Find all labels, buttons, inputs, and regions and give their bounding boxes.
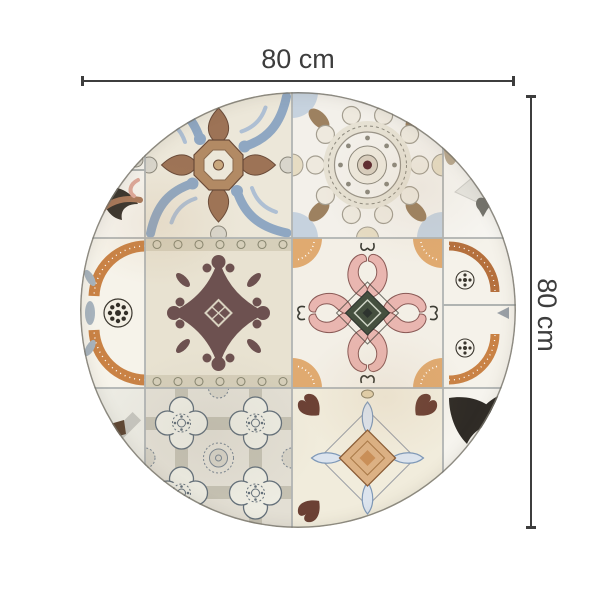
lace-medallion-tile-icon — [292, 92, 443, 238]
pink-acanthus-tile-icon — [292, 238, 443, 388]
width-dimension-line — [82, 80, 514, 82]
tile-edge-orange-arcs — [80, 238, 145, 388]
dimension-tick-bottom — [526, 526, 536, 529]
tile-seam — [80, 237, 516, 239]
tile-gray-quatrefoil-lattice — [145, 388, 292, 528]
tile-seam — [80, 387, 516, 389]
dimension-tick-top — [526, 95, 536, 98]
dimension-tick-left — [81, 76, 84, 86]
tile-edge-black-leaf-eye — [443, 388, 516, 528]
tile-plum-damask — [145, 238, 292, 388]
diamond-medallion-tile-icon — [292, 388, 443, 528]
orange-arc-tile-icon — [80, 238, 145, 388]
tile-ornate-cross-blue-brown — [145, 92, 292, 238]
tile-edge-faint-ornament — [443, 92, 516, 238]
orange-arc-right-tile-icon — [443, 238, 516, 388]
height-dimension-label: 80 cm — [532, 215, 562, 415]
tile-pink-acanthus-cross — [292, 238, 443, 388]
tile-edge-gray-lattice — [80, 388, 145, 528]
ornate-cross-tile-icon — [145, 92, 292, 238]
tile-seam — [442, 92, 444, 528]
faint-ornament-tile-icon — [443, 92, 516, 238]
round-tile-mat-image — [80, 92, 516, 528]
plum-damask-tile-icon — [145, 238, 292, 388]
dimension-tick-right — [512, 76, 515, 86]
tile-edge-black-leaf — [80, 92, 145, 238]
width-dimension-label: 80 cm — [198, 44, 398, 75]
tile-edge-orange-arcs-right — [443, 238, 516, 388]
black-leaf-eye-tile-icon — [443, 388, 516, 528]
tile-seam — [144, 92, 146, 528]
tile-round-lace-medallion — [292, 92, 443, 238]
tile-diamond-leaf-medallion — [292, 388, 443, 528]
tile-seam — [291, 92, 293, 528]
black-leaf-tile-icon — [80, 92, 145, 238]
quatrefoil-lattice-tile-icon — [145, 388, 292, 528]
gray-lattice-tile-icon — [80, 388, 145, 528]
product-dimension-diagram: 80 cm 80 cm — [0, 0, 600, 600]
